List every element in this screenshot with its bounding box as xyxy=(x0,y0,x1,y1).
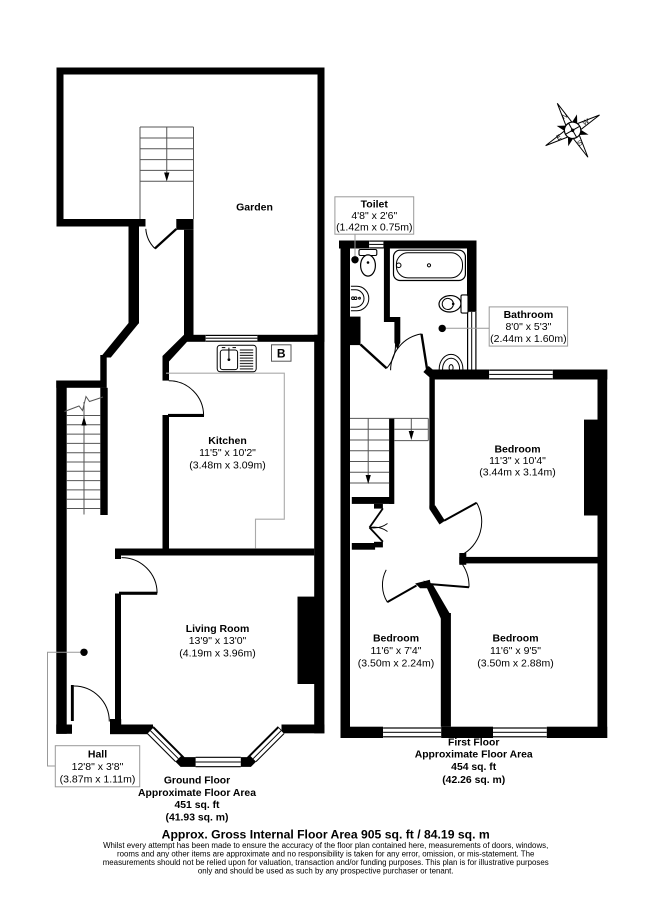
svg-text:(42.26 sq. m): (42.26 sq. m) xyxy=(442,775,505,786)
svg-text:(1.42m x 0.75m): (1.42m x 0.75m) xyxy=(336,222,412,234)
svg-text:Approximate Floor Area: Approximate Floor Area xyxy=(138,788,256,799)
svg-text:Approximate Floor Area: Approximate Floor Area xyxy=(415,750,533,761)
svg-text:(41.93 sq. m): (41.93 sq. m) xyxy=(166,812,229,823)
svg-text:Bathroom: Bathroom xyxy=(504,309,554,321)
svg-text:(3.87m x 1.11m): (3.87m x 1.11m) xyxy=(60,774,136,786)
svg-text:(2.44m x 1.60m): (2.44m x 1.60m) xyxy=(490,333,566,345)
svg-text:Hall: Hall xyxy=(88,749,107,761)
svg-text:Bedroom: Bedroom xyxy=(494,444,540,456)
svg-text:(3.44m x 3.14m): (3.44m x 3.14m) xyxy=(479,467,555,479)
svg-text:4'8" x 2'6": 4'8" x 2'6" xyxy=(351,210,397,222)
svg-text:8'0" x 5'3": 8'0" x 5'3" xyxy=(505,321,551,333)
svg-text:First Floor: First Floor xyxy=(448,738,499,749)
svg-text:Bedroom: Bedroom xyxy=(492,633,538,645)
svg-text:B: B xyxy=(277,346,286,360)
svg-text:11'5" x 10'2": 11'5" x 10'2" xyxy=(199,447,256,459)
svg-text:(4.19m x 3.96m): (4.19m x 3.96m) xyxy=(179,647,255,659)
svg-text:(3.50m x 2.88m): (3.50m x 2.88m) xyxy=(477,658,553,670)
svg-text:Approx. Gross Internal Floor A: Approx. Gross Internal Floor Area 905 sq… xyxy=(162,827,490,841)
svg-text:Living Room: Living Room xyxy=(186,623,250,635)
svg-text:11'3" x 10'4": 11'3" x 10'4" xyxy=(489,455,546,467)
svg-text:11'6" x 7'4": 11'6" x 7'4" xyxy=(371,645,422,657)
svg-text:only and should be used as suc: only and should be used as such by any p… xyxy=(198,866,454,875)
svg-text:451 sq. ft: 451 sq. ft xyxy=(174,800,220,811)
svg-text:(3.50m x 2.24m): (3.50m x 2.24m) xyxy=(358,658,434,670)
svg-text:Bedroom: Bedroom xyxy=(373,633,419,645)
svg-text:(3.48m x 3.09m): (3.48m x 3.09m) xyxy=(189,459,265,471)
svg-text:Ground Floor: Ground Floor xyxy=(164,776,230,787)
svg-text:Kitchen: Kitchen xyxy=(208,435,247,447)
svg-text:454 sq. ft: 454 sq. ft xyxy=(451,762,497,773)
svg-text:12'8" x 3'8": 12'8" x 3'8" xyxy=(72,761,124,773)
svg-text:11'6" x 9'5": 11'6" x 9'5" xyxy=(490,645,541,657)
svg-text:Garden: Garden xyxy=(236,202,273,214)
svg-text:Toilet: Toilet xyxy=(361,198,389,210)
svg-text:13'9" x 13'0": 13'9" x 13'0" xyxy=(189,635,247,647)
